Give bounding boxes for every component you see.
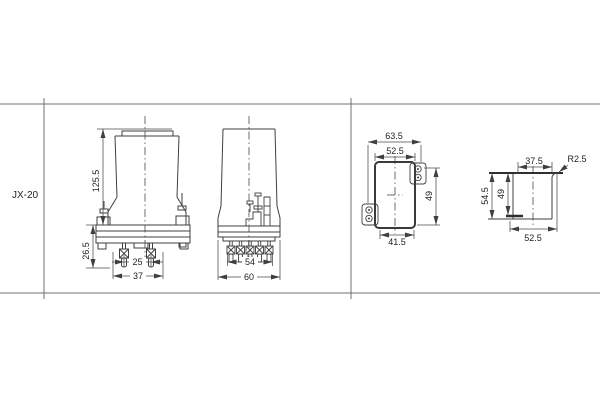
cutout-top-right-tab — [410, 163, 426, 184]
cutout-dimensions — [368, 142, 440, 239]
dim-mount-inner-height: 49 — [496, 189, 506, 199]
technical-drawing-svg: JX-20 — [0, 0, 600, 400]
front-view-screws — [97, 193, 189, 247]
dim-mount-height: 54.5 — [480, 187, 490, 205]
dim-cutout-hole-span: 63.5 — [385, 131, 403, 141]
front-view: 125.5 26.5 25 37 — [81, 116, 190, 281]
front-view-dimensions — [86, 129, 172, 281]
dim-front-terminal-length: 26.5 — [81, 242, 91, 260]
side-mount-view: 37.5 R2.5 54.5 49 52.5 — [480, 154, 587, 243]
panel-cutout-view: 63.5 52.5 49 41.5 — [362, 131, 440, 247]
dim-front-width: 37 — [133, 271, 143, 281]
front-view-outline — [108, 131, 186, 225]
dim-mount-bottom-width: 52.5 — [524, 233, 542, 243]
page: JX-20 — [0, 0, 600, 400]
side-view-bracket — [246, 193, 270, 226]
front-view-base — [96, 225, 190, 249]
dim-cutout-bottom-width: 41.5 — [388, 237, 406, 247]
dim-front-pin-spacing: 25 — [132, 257, 142, 267]
dim-side-depth: 60 — [244, 272, 254, 282]
dim-side-pin-row-width: 54 — [245, 257, 255, 267]
title-block-grid — [0, 98, 600, 299]
dim-mount-top-width: 37.5 — [525, 156, 543, 166]
model-label: JX-20 — [12, 190, 39, 201]
dim-mount-corner-radius: R2.5 — [567, 154, 586, 164]
dim-cutout-height: 49 — [424, 191, 434, 201]
side-view: 54 60 — [218, 116, 280, 282]
dim-cutout-width: 52.5 — [386, 146, 404, 156]
dim-front-height: 125.5 — [91, 170, 101, 193]
